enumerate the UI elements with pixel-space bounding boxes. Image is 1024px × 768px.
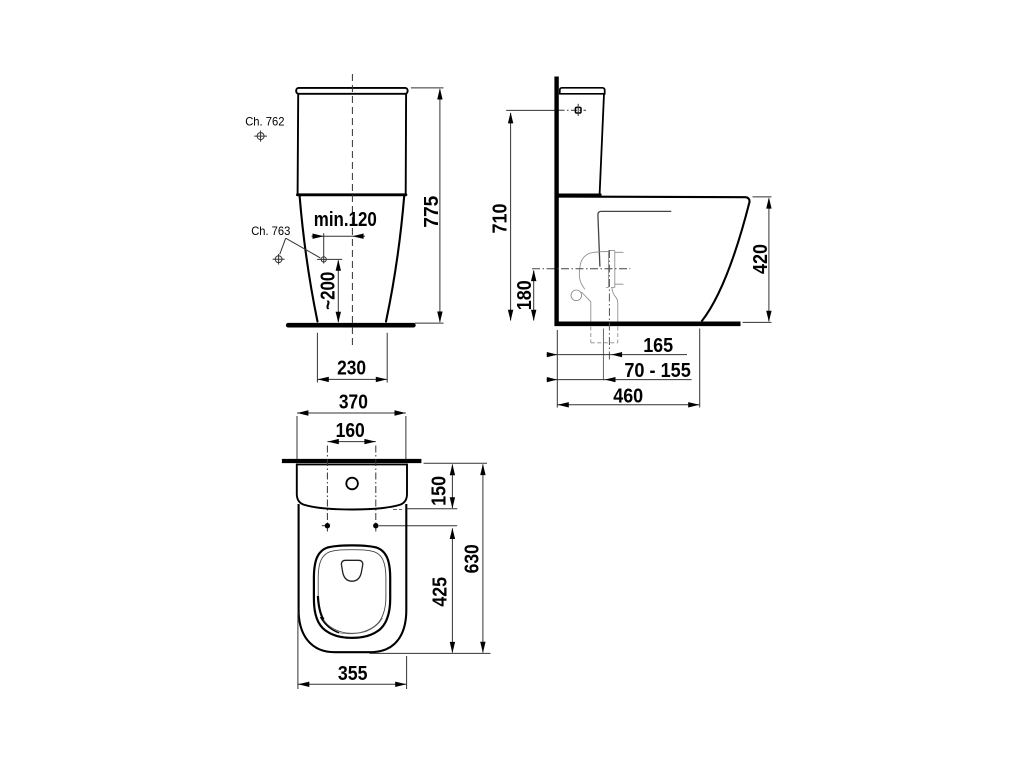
svg-text:180: 180 [514,280,536,310]
svg-text:630: 630 [462,544,484,573]
svg-text:150: 150 [429,476,451,506]
svg-text:355: 355 [338,663,368,685]
svg-text:min.120: min.120 [314,209,377,231]
svg-text:Ch. 763: Ch. 763 [251,224,290,238]
svg-text:425: 425 [430,577,452,607]
svg-text:165: 165 [643,335,673,357]
svg-text:775: 775 [421,196,443,228]
svg-text:460: 460 [613,385,643,407]
svg-text:420: 420 [750,244,772,274]
svg-text:370: 370 [339,392,368,414]
svg-text:~200: ~200 [318,272,340,310]
svg-text:230: 230 [337,358,366,380]
svg-text:70 - 155: 70 - 155 [624,360,691,382]
svg-text:160: 160 [336,420,365,442]
svg-text:Ch. 762: Ch. 762 [245,114,285,128]
svg-text:710: 710 [490,204,512,234]
